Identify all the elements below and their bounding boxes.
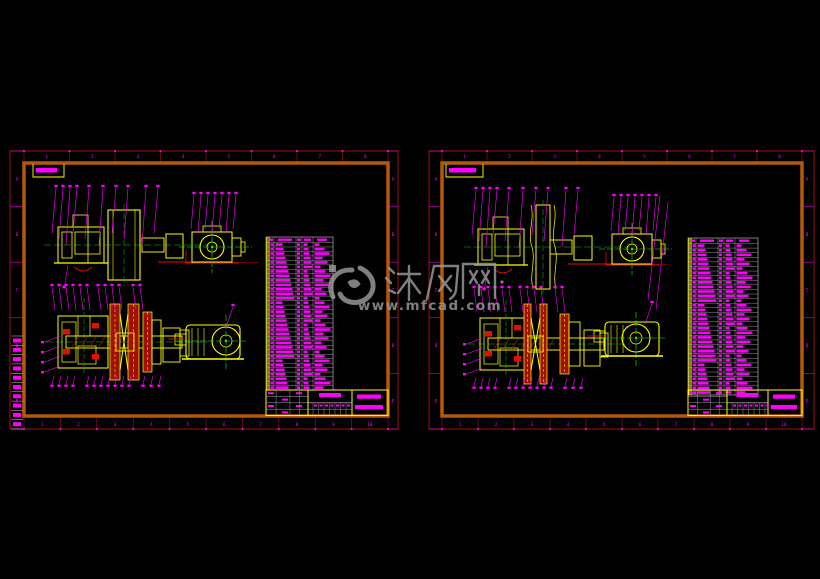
svg-text:1: 1 <box>463 154 466 160</box>
svg-text:D: D <box>392 343 395 349</box>
section-view <box>41 284 208 387</box>
side-view <box>179 192 252 273</box>
svg-text:10: 10 <box>367 422 373 428</box>
svg-text:3: 3 <box>114 422 117 428</box>
svg-text:2: 2 <box>77 422 80 428</box>
drawing-sheet-left: 1234567812345678910AABBCCDDEE <box>10 150 398 430</box>
svg-text:10: 10 <box>781 422 787 428</box>
svg-text:2: 2 <box>508 154 511 160</box>
front-view <box>44 185 258 289</box>
sheet-stamp <box>33 164 64 177</box>
cad-viewport: 沐风网 1234567812345678910AABBCCDDEE1234567… <box>0 0 820 579</box>
svg-text:E: E <box>806 399 809 405</box>
svg-text:7: 7 <box>318 154 321 160</box>
svg-text:8: 8 <box>296 422 299 428</box>
svg-text:E: E <box>435 399 438 405</box>
svg-text:1: 1 <box>45 154 48 160</box>
svg-text:3: 3 <box>136 154 139 160</box>
svg-text:9: 9 <box>332 422 335 428</box>
svg-text:6: 6 <box>639 422 642 428</box>
svg-text:8: 8 <box>711 422 714 428</box>
svg-text:4: 4 <box>150 422 153 428</box>
svg-text:1: 1 <box>459 422 462 428</box>
svg-text:A: A <box>392 176 395 182</box>
svg-text:4: 4 <box>567 422 570 428</box>
svg-text:2: 2 <box>91 154 94 160</box>
svg-text:A: A <box>435 176 438 182</box>
motor-view <box>587 301 667 366</box>
svg-text:5: 5 <box>643 154 646 160</box>
sheet-stamp <box>446 164 483 177</box>
logo-droplet <box>348 280 360 288</box>
watermark-logo-and-brand <box>329 264 504 302</box>
svg-text:7: 7 <box>733 154 736 160</box>
title-block <box>266 390 388 416</box>
svg-text:5: 5 <box>227 154 230 160</box>
svg-text:D: D <box>435 343 438 349</box>
svg-text:7: 7 <box>259 422 262 428</box>
revision-strip <box>12 336 24 429</box>
svg-text:B: B <box>435 232 438 238</box>
svg-text:7: 7 <box>675 422 678 428</box>
svg-text:3: 3 <box>531 422 534 428</box>
svg-text:8: 8 <box>364 154 367 160</box>
svg-text:9: 9 <box>747 422 750 428</box>
bom-table <box>688 238 758 395</box>
svg-text:C: C <box>435 288 438 294</box>
watermark: www.mfcad.com <box>329 264 504 314</box>
zone-border: 1234567812345678910AABBCCDDEE <box>10 150 398 430</box>
svg-text:B: B <box>806 232 809 238</box>
brand-dot <box>500 280 503 283</box>
watermark-url: www.mfcad.com <box>358 298 502 314</box>
svg-text:1: 1 <box>41 422 44 428</box>
svg-text:C: C <box>16 288 19 294</box>
bom-table <box>266 237 333 390</box>
svg-text:A: A <box>806 176 809 182</box>
drawing-sheet-right: 1234567812345678910AABBCCDDEE <box>429 150 814 430</box>
svg-text:C: C <box>806 288 809 294</box>
svg-text:E: E <box>392 399 395 405</box>
cad-drawing-canvas: 1234567812345678910AABBCCDDEE12345678123… <box>0 0 820 579</box>
svg-text:5: 5 <box>603 422 606 428</box>
logo-square <box>329 265 336 272</box>
svg-text:4: 4 <box>598 154 601 160</box>
svg-text:6: 6 <box>273 154 276 160</box>
svg-text:6: 6 <box>223 422 226 428</box>
svg-text:4: 4 <box>182 154 185 160</box>
svg-text:6: 6 <box>688 154 691 160</box>
svg-text:3: 3 <box>553 154 556 160</box>
svg-text:8: 8 <box>778 154 781 160</box>
title-block <box>688 390 802 416</box>
svg-text:2: 2 <box>495 422 498 428</box>
svg-text:5: 5 <box>187 422 190 428</box>
svg-text:B: B <box>392 232 395 238</box>
svg-text:B: B <box>16 232 19 238</box>
svg-text:D: D <box>806 343 809 349</box>
svg-text:A: A <box>16 176 19 182</box>
